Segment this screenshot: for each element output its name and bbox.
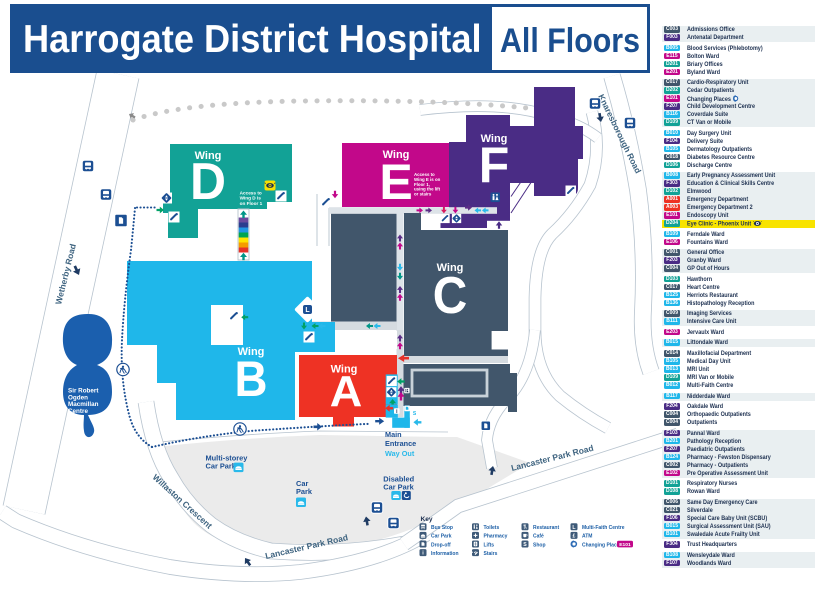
svg-text:F: F — [479, 137, 510, 193]
svg-text:DisabledCar Park: DisabledCar Park — [383, 475, 414, 492]
svg-text:Drop-off: Drop-off — [431, 542, 451, 548]
svg-text:Pharmacy: Pharmacy — [484, 534, 508, 540]
svg-text:E: E — [379, 154, 412, 210]
svg-text:S: S — [523, 542, 527, 548]
svg-text:£: £ — [573, 534, 576, 540]
svg-text:L: L — [305, 307, 310, 314]
svg-text:Café: Café — [533, 534, 544, 540]
svg-text:E101: E101 — [619, 542, 631, 548]
svg-text:Information: Information — [431, 551, 459, 557]
svg-text:Car Park: Car Park — [431, 534, 452, 540]
svg-text:Bus Stop: Bus Stop — [431, 525, 453, 531]
svg-text:Toilets: Toilets — [484, 525, 500, 531]
svg-text:D: D — [190, 153, 226, 211]
svg-text:Restaurant: Restaurant — [533, 525, 559, 531]
svg-text:Access toWing D ison Floor 1: Access toWing D ison Floor 1 — [240, 191, 263, 206]
svg-text:Shop: Shop — [533, 542, 546, 548]
svg-text:Stairs: Stairs — [484, 551, 498, 557]
svg-text:B: B — [235, 351, 268, 407]
svg-text:Multi-Faith Centre: Multi-Faith Centre — [582, 525, 625, 531]
svg-text:Key: Key — [421, 516, 433, 523]
svg-text:Way Out: Way Out — [385, 449, 415, 458]
svg-text:A: A — [330, 367, 363, 416]
svg-text:MainEntrance: MainEntrance — [385, 430, 416, 448]
svg-text:ATM: ATM — [582, 534, 592, 540]
svg-text:C: C — [433, 267, 468, 325]
svg-text:Lifts: Lifts — [484, 542, 495, 548]
svg-text:Changing Places: Changing Places — [582, 542, 623, 548]
